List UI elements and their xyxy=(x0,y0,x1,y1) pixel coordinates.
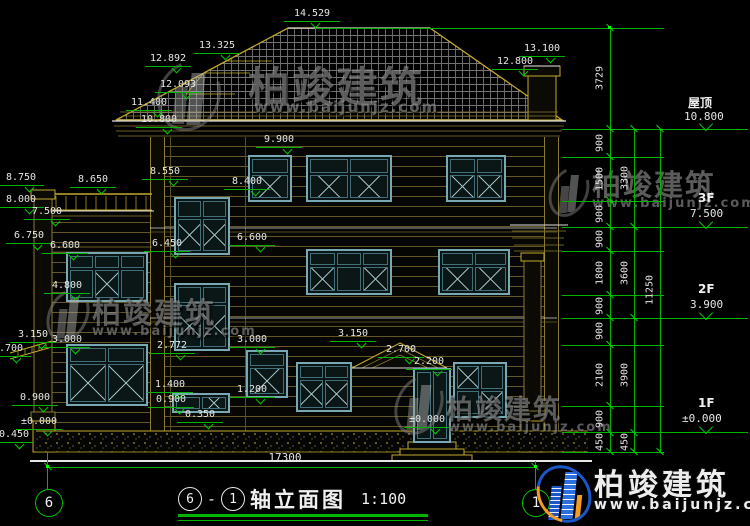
elevation-value: 13.100 xyxy=(519,43,565,55)
elevation-marker: 11.400 xyxy=(126,97,172,116)
axis-number: 6 xyxy=(45,495,53,511)
elevation-value: 12.093 xyxy=(155,79,201,91)
title-separator: - xyxy=(207,490,216,508)
dim-text: 1800 xyxy=(595,261,606,285)
level-line xyxy=(684,318,748,319)
level-label: 3F xyxy=(698,191,715,205)
window xyxy=(66,344,148,406)
elevation-value: 8.000 xyxy=(0,194,44,206)
elevation-value: 4.800 xyxy=(44,280,90,292)
window xyxy=(446,155,506,202)
axis-bubble-6: 6 xyxy=(35,489,63,517)
title-text: 轴立面图 xyxy=(250,484,346,514)
elevation-value: 7.500 xyxy=(24,206,70,218)
dim-text: 900 xyxy=(595,134,606,152)
elevation-marker: 7.500 xyxy=(24,206,70,225)
level-value: ±0.000 xyxy=(682,412,722,425)
elevation-value: ±0.000 xyxy=(404,414,450,426)
elevation-marker: 6.600 xyxy=(42,240,88,259)
watermark-url: www.baijunjz.com xyxy=(254,98,439,116)
dim-text: 3900 xyxy=(620,363,631,387)
dim-text: 450 xyxy=(620,433,631,451)
elevation-marker: 3.000 xyxy=(44,334,90,353)
elevation-marker: 2.200 xyxy=(406,356,452,375)
elevation-value: 1.200 xyxy=(229,384,275,396)
level-line xyxy=(684,129,748,130)
window xyxy=(306,249,392,295)
elevation-value: 3.000 xyxy=(44,334,90,346)
dimension-chain-inner xyxy=(610,129,611,452)
elevation-value: 6.450 xyxy=(144,238,190,250)
level-value: 7.500 xyxy=(690,207,723,220)
elevation-value: 8.650 xyxy=(70,174,116,186)
elevation-marker: 10.800 xyxy=(136,114,182,133)
elevation-value: 1.400 xyxy=(147,379,193,391)
drawing-title: 6 - 1 轴立面图 1:100 xyxy=(178,484,406,514)
level-label: 屋顶 xyxy=(688,94,712,111)
elevation-value: 0.900 xyxy=(12,392,58,404)
level-value: 3.900 xyxy=(690,298,723,311)
elevation-value: 2.772 xyxy=(149,340,195,352)
elevation-value: 10.800 xyxy=(136,114,182,126)
title-underline xyxy=(178,520,428,521)
elevation-marker: 4.800 xyxy=(44,280,90,299)
dim-text: 3729 xyxy=(595,66,606,90)
dimension-chain-mid xyxy=(634,129,635,452)
elevation-marker: 8.750 xyxy=(0,172,44,191)
window xyxy=(438,249,510,295)
watermark-logo-icon xyxy=(550,166,588,218)
elevation-value: 12.800 xyxy=(492,56,538,68)
axis-line xyxy=(47,452,48,490)
watermark-url: www.baijunjz.com xyxy=(592,196,750,211)
elevation-marker: 8.550 xyxy=(142,166,188,185)
elevation-marker: 1.200 xyxy=(229,384,275,403)
elevation-value: -0.450 xyxy=(0,429,34,441)
elevation-value: 2.700 xyxy=(378,344,424,356)
elevation-value: 8.550 xyxy=(142,166,188,178)
dimension-line xyxy=(610,28,611,129)
level-value: 10.800 xyxy=(684,110,724,123)
level-line xyxy=(684,227,748,228)
dim-text: 900 xyxy=(595,230,606,248)
axis-circle-from: 6 xyxy=(178,487,202,511)
dim-text: 900 xyxy=(595,322,606,340)
title-scale: 1:100 xyxy=(361,490,406,508)
brand-logo-icon xyxy=(538,464,590,524)
dim-text: 1500 xyxy=(595,167,606,191)
total-width-dim: 17300 xyxy=(255,451,315,464)
elevation-value: 9.900 xyxy=(256,134,302,146)
dim-text: 2100 xyxy=(595,363,606,387)
elevation-value: 3.150 xyxy=(330,328,376,340)
dim-text: 3600 xyxy=(620,261,631,285)
elevation-value: 11.400 xyxy=(126,97,172,109)
window xyxy=(296,362,352,412)
axis-number: 1 xyxy=(229,492,237,507)
dimension-chain-outer xyxy=(660,129,661,452)
elevation-marker: 0.900 xyxy=(12,392,58,411)
elevation-marker: 12.892 xyxy=(145,53,191,72)
elevation-marker: 8.400 xyxy=(224,176,270,195)
elevation-value: 6.600 xyxy=(229,232,275,244)
dim-text: 11250 xyxy=(645,275,656,305)
elevation-value: ±0.000 xyxy=(16,416,62,428)
elevation-marker: 13.325 xyxy=(194,40,240,59)
chimney xyxy=(528,75,556,120)
elevation-value: 0.900 xyxy=(148,394,194,406)
axis-number: 6 xyxy=(186,492,194,507)
dim-text: 900 xyxy=(595,297,606,315)
axis-circle-to: 1 xyxy=(221,487,245,511)
elevation-marker: -0.450 xyxy=(0,429,34,448)
title-underline xyxy=(178,514,428,517)
level-label: 2F xyxy=(698,282,715,296)
elevation-marker: 8.650 xyxy=(70,174,116,193)
dim-text: 450 xyxy=(595,433,606,451)
elevation-value: 12.892 xyxy=(145,53,191,65)
elevation-value: 6.600 xyxy=(42,240,88,252)
elevation-marker: 12.800 xyxy=(492,56,538,75)
dim-text: 900 xyxy=(595,410,606,428)
elevation-marker: 3.000 xyxy=(229,334,275,353)
elevation-value: 2.200 xyxy=(406,356,452,368)
elevation-value: 13.325 xyxy=(194,40,240,52)
elevation-value: 0.350 xyxy=(177,409,223,421)
elevation-marker: ±0.000 xyxy=(404,414,450,433)
dimension-line xyxy=(48,467,537,468)
elevation-marker: 3.150 xyxy=(330,328,376,347)
dim-text: 3300 xyxy=(620,166,631,190)
elevation-value: 3.000 xyxy=(229,334,275,346)
level-label: 1F xyxy=(698,396,715,410)
cad-elevation-drawing: 柏竣建筑 www.baijunjz.com 柏竣建筑 www.baijunjz.… xyxy=(0,0,750,526)
elevation-value: 14.529 xyxy=(284,8,340,20)
elevation-marker: 12.093 xyxy=(155,79,201,98)
elevation-marker: 6.450 xyxy=(144,238,190,257)
window xyxy=(306,155,392,202)
elevation-marker: 6.600 xyxy=(229,232,275,251)
dim-text: 900 xyxy=(595,205,606,223)
brand-url: www.baijunjz.com xyxy=(594,497,750,513)
elevation-marker: 9.900 xyxy=(256,134,302,153)
level-line xyxy=(684,432,748,433)
elevation-marker: 14.529 xyxy=(284,8,340,27)
elevation-value: 8.400 xyxy=(224,176,270,188)
elevation-marker: 2.772 xyxy=(149,340,195,359)
elevation-value: 8.750 xyxy=(0,172,44,184)
elevation-marker: 0.350 xyxy=(177,409,223,428)
